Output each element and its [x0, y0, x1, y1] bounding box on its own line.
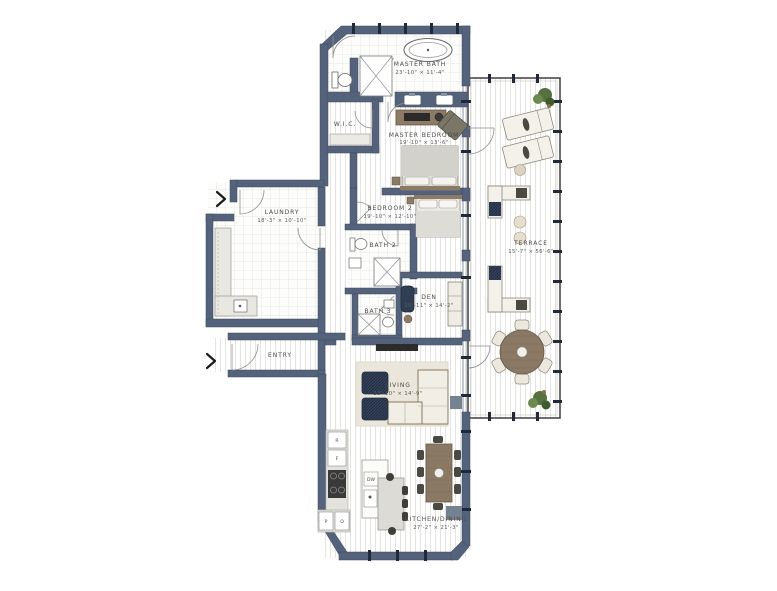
wic-shelf	[330, 134, 370, 145]
sink	[349, 258, 361, 268]
label-terrace: TERRACE	[513, 240, 548, 247]
stool	[402, 499, 408, 508]
label-living: LIVING	[385, 382, 411, 389]
terrace-chair	[515, 320, 529, 330]
master-bed	[400, 146, 460, 190]
dining-chair	[433, 436, 443, 443]
label-bath2: BATH 2	[369, 242, 396, 249]
dims-kitchen-dining: 27'-2" × 21'-3"	[413, 525, 459, 531]
label-laundry: LAUNDRY	[265, 209, 300, 216]
dining-chair	[454, 484, 461, 494]
master-bedroom-furniture	[392, 110, 468, 190]
dims-living: 23'-10" × 14'-9"	[373, 391, 422, 397]
kitchen-island-b	[378, 473, 408, 535]
bathtub	[404, 39, 452, 62]
shower2	[374, 258, 400, 286]
floor-plan: MASTER BATH 23'-10" × 11'-4" W.I.C. MAST…	[0, 0, 777, 591]
tv	[376, 344, 418, 351]
label-bedroom2: BEDROOM 2	[367, 205, 412, 212]
label-kitchen-dining: KITCHEN/DINING	[405, 516, 467, 523]
floor-plan-drawing: MASTER BATH 23'-10" × 11'-4" W.I.C. MAST…	[0, 0, 777, 591]
laundry-faucet	[239, 305, 242, 308]
dining-chair	[417, 484, 424, 494]
toilet-bowl	[355, 239, 367, 250]
dims-bedroom2: 19'-10" × 12'-10"	[363, 214, 416, 220]
terrace-chair	[515, 374, 529, 384]
terrace-side-table	[515, 165, 526, 176]
den-side-table	[404, 315, 412, 323]
label-master-bedroom: MASTER BEDROOM	[389, 132, 460, 139]
terrace-side-table	[514, 216, 526, 228]
dims-master-bedroom: 19'-10" × 13'-6"	[399, 140, 448, 146]
sink3	[384, 300, 394, 308]
label-dishwasher: DW	[367, 477, 376, 483]
toilet3	[383, 317, 394, 327]
label-entry: ENTRY	[268, 352, 292, 359]
shower3	[358, 314, 380, 335]
label-pantry: P	[325, 519, 328, 525]
side-table-gray	[450, 396, 462, 409]
dims-terrace: 15'-7" × 56'-6"	[508, 249, 554, 255]
label-bath3: BATH 3	[364, 308, 391, 315]
label-wic: W.I.C.	[334, 121, 356, 128]
dresser-tv	[396, 110, 446, 125]
label-master-bath: MASTER BATH	[394, 61, 446, 68]
dining-chair	[433, 503, 443, 510]
shower	[360, 56, 392, 96]
nightstand	[392, 177, 400, 185]
stool	[402, 486, 408, 495]
toilet	[332, 72, 352, 88]
dining-chair	[417, 467, 424, 477]
label-oven: O	[340, 519, 344, 525]
dims-den: 10'-11" × 14'-2"	[404, 303, 453, 309]
dims-master-bath: 23'-10" × 11'-4"	[395, 70, 444, 76]
nightstand2	[407, 197, 414, 204]
toilet-tank	[350, 238, 355, 251]
dining-chair	[417, 450, 424, 460]
dining-chair	[454, 450, 461, 460]
range	[328, 470, 346, 498]
label-den: DEN	[421, 294, 437, 301]
bed2	[414, 195, 462, 237]
armchair	[362, 398, 388, 420]
label-freezer: F	[336, 456, 339, 462]
dining-chair	[454, 467, 461, 477]
dims-laundry: 18'-3" × 10'-10"	[257, 218, 306, 224]
